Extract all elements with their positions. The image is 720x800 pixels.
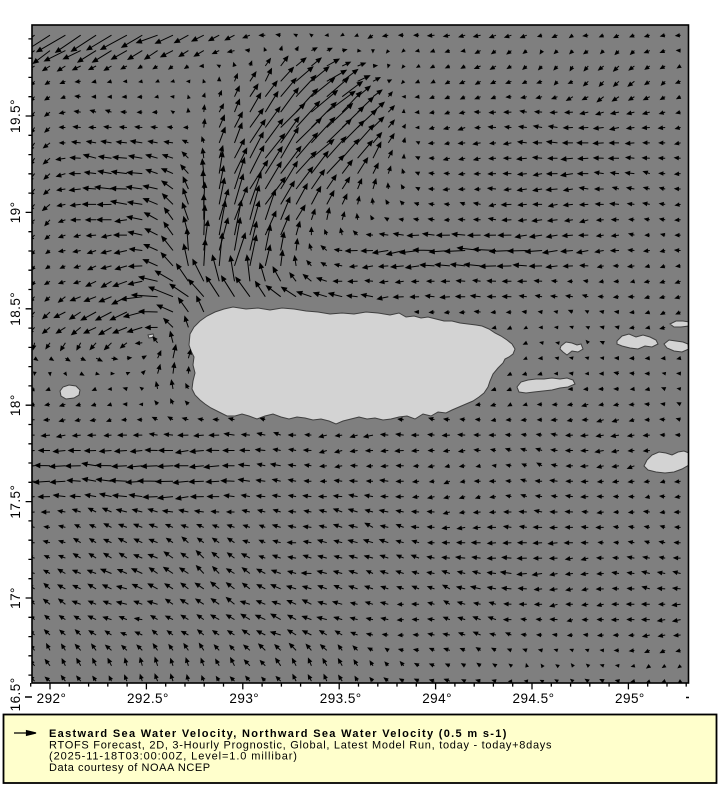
- svg-text:18.5°: 18.5°: [8, 292, 23, 326]
- svg-text:18°: 18°: [8, 394, 23, 416]
- svg-text:293°: 293°: [229, 691, 259, 706]
- svg-text:293.5°: 293.5°: [320, 691, 362, 706]
- svg-text:295°: 295°: [615, 691, 645, 706]
- svg-text:16.5°: 16.5°: [8, 677, 23, 711]
- svg-text:Eastward Sea Water Velocity, N: Eastward Sea Water Velocity, Northward S…: [49, 728, 508, 740]
- svg-text:Data courtesy of NOAA NCEP: Data courtesy of NOAA NCEP: [49, 762, 211, 774]
- svg-text:292.5°: 292.5°: [127, 691, 169, 706]
- svg-text:17.5°: 17.5°: [8, 485, 23, 519]
- svg-text:294°: 294°: [422, 691, 452, 706]
- svg-text:(2025-11-18T03:00:00Z, Level=1: (2025-11-18T03:00:00Z, Level=1.0 milliba…: [49, 751, 298, 763]
- svg-text:292°: 292°: [37, 691, 67, 706]
- svg-text:19.5°: 19.5°: [8, 99, 23, 133]
- svg-text:294.5°: 294.5°: [513, 691, 555, 706]
- svg-text:17°: 17°: [8, 587, 23, 609]
- svg-text:RTOFS Forecast, 2D, 3-Hourly P: RTOFS Forecast, 2D, 3-Hourly Prognostic,…: [49, 739, 552, 751]
- svg-text:19°: 19°: [8, 202, 23, 224]
